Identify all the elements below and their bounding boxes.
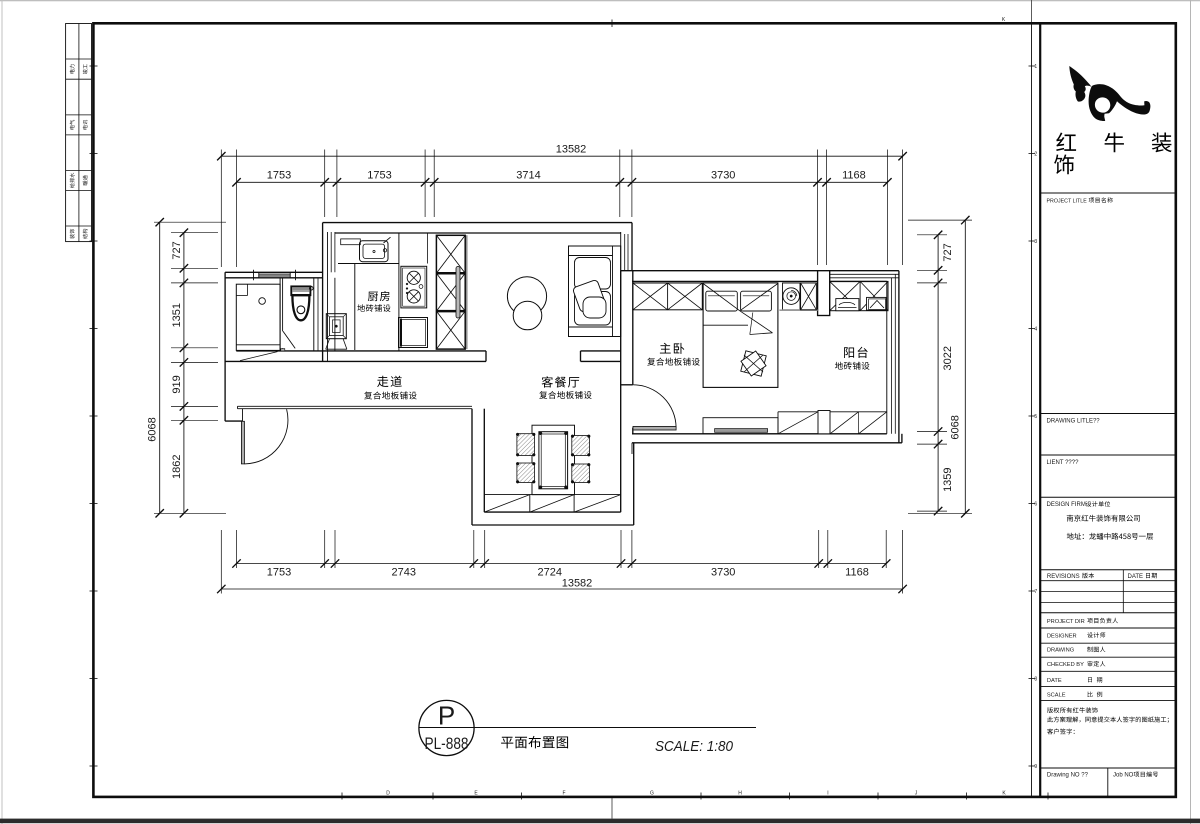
svg-text:DESIGNER: DESIGNER [1047, 633, 1077, 639]
svg-text:9: 9 [1034, 764, 1037, 770]
svg-text:2: 2 [1034, 151, 1037, 157]
svg-text:PL-888: PL-888 [425, 734, 469, 753]
svg-text:919: 919 [171, 375, 183, 393]
svg-text:8: 8 [1034, 676, 1037, 682]
svg-text:G: G [650, 791, 654, 797]
svg-text:REVISIONS: REVISIONS [1047, 574, 1080, 580]
svg-text:3: 3 [1034, 239, 1037, 245]
svg-text:1351: 1351 [171, 303, 183, 327]
svg-text:H: H [738, 791, 742, 797]
svg-text:SCALE: SCALE [1047, 693, 1066, 699]
svg-text:CHECKED BY: CHECKED BY [1047, 662, 1084, 668]
svg-text:PROJECT DIR: PROJECT DIR [1047, 619, 1085, 625]
svg-text:DRAWING: DRAWING [1047, 648, 1074, 654]
svg-text:727: 727 [171, 241, 183, 259]
svg-text:1753: 1753 [267, 170, 291, 182]
svg-text:2724: 2724 [538, 567, 562, 579]
svg-text:1753: 1753 [267, 567, 291, 579]
svg-text:LIENT ????: LIENT ???? [1047, 460, 1080, 466]
svg-text:1168: 1168 [845, 567, 869, 579]
svg-text:6068: 6068 [147, 417, 159, 441]
svg-text:1359: 1359 [942, 467, 954, 491]
svg-text:13582: 13582 [556, 144, 587, 156]
svg-text:P: P [438, 701, 455, 731]
svg-text:4: 4 [1034, 326, 1037, 332]
svg-text:DATE: DATE [1047, 678, 1062, 684]
svg-text:Job NO: Job NO [1113, 773, 1134, 779]
svg-text:Drawing NO ??: Drawing NO ?? [1047, 773, 1089, 779]
svg-text:727: 727 [942, 243, 954, 261]
svg-text:3730: 3730 [711, 170, 735, 182]
svg-text:1168: 1168 [842, 170, 866, 182]
svg-text:PROJECT LITLE: PROJECT LITLE [1047, 198, 1088, 204]
svg-text:6068: 6068 [950, 415, 962, 439]
svg-text:7: 7 [1034, 589, 1037, 595]
svg-text:5: 5 [1034, 414, 1037, 420]
svg-text:2743: 2743 [392, 567, 416, 579]
svg-text:DRAWING LITLE??: DRAWING LITLE?? [1047, 419, 1101, 425]
svg-text:I: I [827, 791, 828, 797]
svg-text:1862: 1862 [171, 455, 183, 479]
svg-text:SCALE: 1:80: SCALE: 1:80 [655, 738, 734, 755]
svg-text:F: F [562, 791, 565, 797]
svg-text:3714: 3714 [516, 170, 540, 182]
svg-text:1: 1 [1034, 64, 1037, 70]
svg-text:D: D [386, 791, 390, 797]
svg-text:DESIGN FIRM: DESIGN FIRM [1047, 502, 1086, 508]
svg-text:3022: 3022 [942, 346, 954, 370]
svg-text:3730: 3730 [711, 567, 735, 579]
svg-text:6: 6 [1034, 501, 1037, 507]
svg-text:13582: 13582 [562, 577, 593, 589]
svg-text:DATE: DATE [1128, 574, 1144, 580]
svg-text:1753: 1753 [367, 170, 391, 182]
